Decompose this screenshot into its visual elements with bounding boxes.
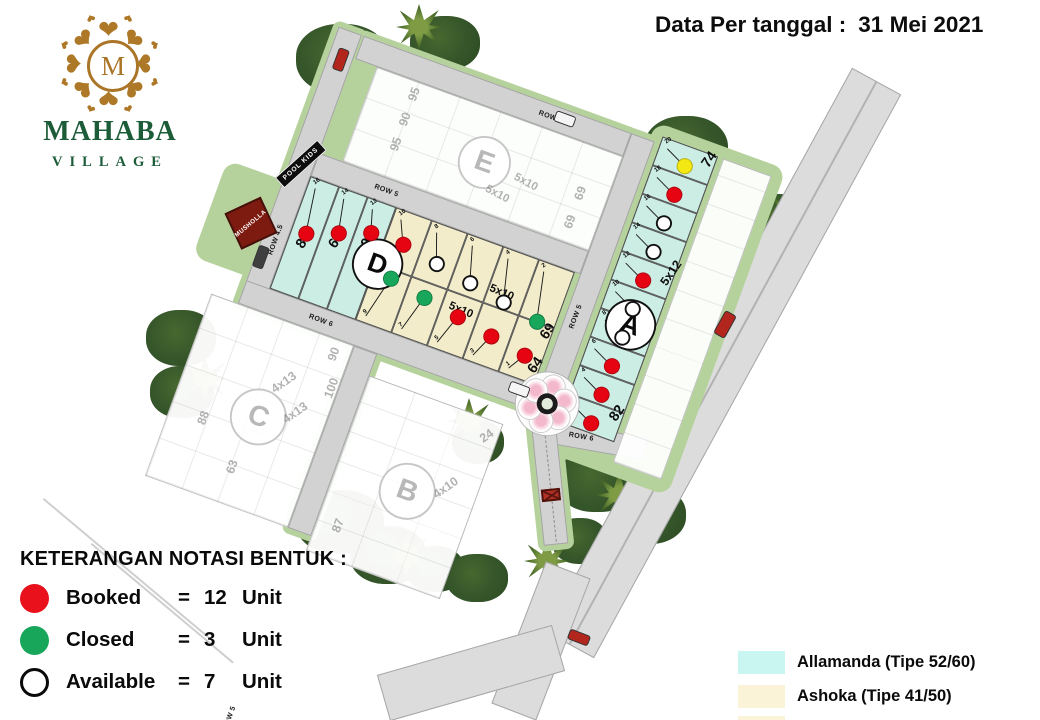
legend-house-types: Allamanda (Tipe 52/60)Ashoka (Tipe 41/50… [738, 645, 976, 720]
logo-heart-icon: ❤ [98, 17, 119, 42]
legend-equals: = [178, 628, 204, 652]
faint-plot-label: 63 [223, 458, 241, 476]
legend-status-count: 3 [204, 628, 242, 652]
site-plan-poster: M ❤❤❤❤❤❤❤❤❤❤❤❤❤❤❤❤ MAHABA VILLAGE Data P… [0, 0, 1040, 720]
date-label: Data Per tanggal : [655, 12, 846, 38]
faint-plot-label: 5x10 [483, 182, 512, 206]
legend-status-name: Closed [66, 628, 178, 652]
legend-type-row: Allamanda (Tipe 52/60) [738, 645, 976, 679]
legend-status-row: Booked=12Unit [20, 577, 347, 619]
logo-heart-icon: ❤ [130, 53, 155, 74]
brand-subname: VILLAGE [25, 154, 195, 171]
road-label: ROW 5 [567, 303, 584, 330]
logo-heart-icon: ❤ [62, 53, 87, 74]
legend-dot-booked-icon [20, 584, 49, 613]
legend-status-row: Closed=3Unit [20, 619, 347, 661]
entrance-gate-icon [541, 488, 561, 502]
legend-status-heading: KETERANGAN NOTASI BENTUK : [20, 548, 347, 571]
legend-dot-available-icon [20, 668, 49, 697]
legend-status-rows: Booked=12UnitClosed=3UnitAvailable=7Unit [20, 577, 347, 703]
road-label: ROW 5 [373, 182, 400, 199]
brand-name: MAHABA [25, 116, 195, 148]
legend-status: KETERANGAN NOTASI BENTUK : Booked=12Unit… [20, 548, 347, 703]
faint-plot-label: 87 [329, 517, 347, 535]
legend-type-label: Ashoka (Tipe 41/50) [797, 687, 952, 706]
legend-status-count: 12 [204, 586, 242, 610]
faint-plot-label: 90 [396, 110, 414, 128]
data-date-line: Data Per tanggal : 31 Mei 2021 [655, 12, 983, 38]
logo-small-heart-icon: ❤ [84, 10, 97, 24]
road-label: ROW 6 [308, 312, 335, 329]
faint-plot-label: 4x10 [430, 474, 461, 501]
logo-small-heart-icon: ❤ [57, 38, 71, 51]
legend-unit-label: Unit [242, 628, 347, 652]
legend-type-label: Allamanda (Tipe 52/60) [797, 653, 976, 672]
faint-plot-label: 4x13 [268, 368, 299, 395]
date-value: 31 Mei 2021 [858, 12, 983, 38]
logo-small-heart-icon: ❤ [149, 38, 163, 51]
legend-status-name: Booked [66, 586, 178, 610]
block-E-circle: E [450, 128, 518, 196]
legend-type-row: Ashoka (Tipe 41/50) [738, 679, 976, 713]
legend-status-name: Available [66, 670, 178, 694]
legend-dot-closed-icon [20, 626, 49, 655]
faint-plot-label: 69 [571, 184, 589, 202]
faint-plot-label: 24 [477, 426, 496, 446]
logo-small-heart-icon: ❤ [122, 103, 135, 117]
faint-plot-label: 95 [386, 135, 404, 153]
legend-type-swatch [738, 651, 785, 674]
legend-unit-label: Unit [242, 670, 347, 694]
logo-heart-icon: ❤ [98, 85, 119, 110]
faint-plot-label: 4x13 [279, 399, 310, 426]
legend-unit-label: Unit [242, 586, 347, 610]
faint-plot-label: 88 [194, 409, 212, 427]
road-label: ROW 5 [221, 705, 238, 720]
legend-type-swatch-partial [738, 716, 785, 720]
legend-equals: = [178, 586, 204, 610]
logo-small-heart-icon: ❤ [84, 103, 97, 117]
faint-plot-label: 95 [405, 85, 423, 103]
legend-status-count: 7 [204, 670, 242, 694]
faint-plot-label: 90 [324, 345, 342, 363]
musholla-label: MUSHOLLA [234, 208, 268, 238]
legend-type-swatch [738, 685, 785, 708]
faint-plot-label: 69 [560, 213, 578, 231]
legend-equals: = [178, 670, 204, 694]
logo-mandala-icon: M ❤❤❤❤❤❤❤❤❤❤❤❤❤❤❤❤ [55, 8, 165, 118]
logo-small-heart-icon: ❤ [149, 76, 163, 89]
brand-logo: M ❤❤❤❤❤❤❤❤❤❤❤❤❤❤❤❤ MAHABA VILLAGE [25, 8, 195, 183]
faint-plot-label: 5x10 [512, 170, 541, 194]
legend-status-row: Available=7Unit [20, 661, 347, 703]
